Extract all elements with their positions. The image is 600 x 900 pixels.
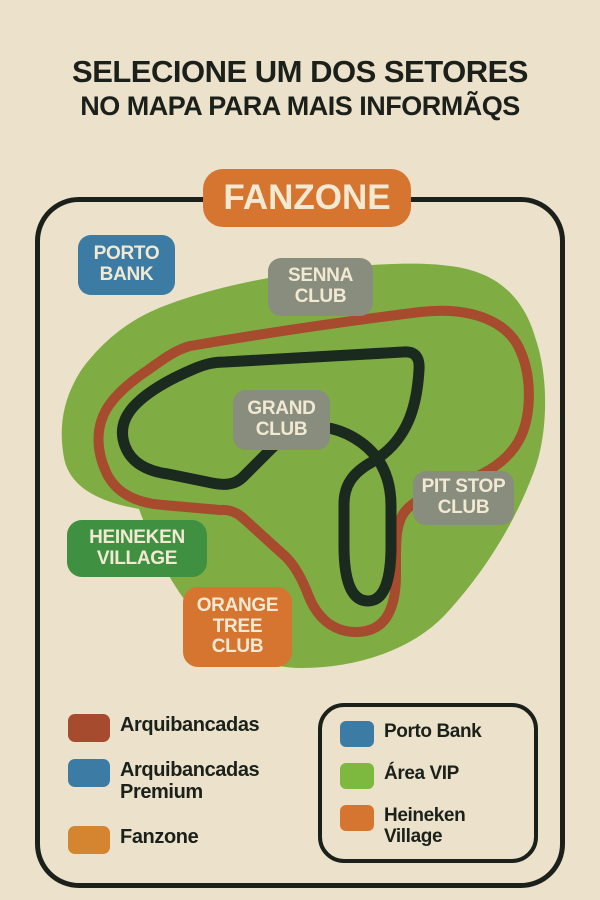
legend-item-arquibancadas: Arquibancadas [68, 714, 259, 742]
sector-porto-bank-line2: BANK [100, 265, 154, 286]
page-title: SELECIONE UM DOS SETORES NO MAPA PARA MA… [0, 54, 600, 122]
legend-label-fanzone: Fanzone [110, 826, 198, 848]
legend-label-arquibancadas-premium: Arquibancadas Premium [110, 759, 290, 804]
sector-grand-club-line2: CLUB [256, 420, 308, 441]
legend-item-area-vip: Área VIP [340, 763, 459, 789]
sector-fanzone[interactable]: FANZONE [203, 169, 411, 227]
legend-label-porto-bank: Porto Bank [374, 721, 481, 742]
sector-grand-club-line1: GRAND [247, 399, 315, 420]
sector-pit-stop-club[interactable]: PIT STOP CLUB [413, 471, 514, 525]
sector-orange-tree-club-line2: TREE [213, 617, 262, 638]
legend-item-fanzone: Fanzone [68, 826, 198, 854]
sector-grand-club[interactable]: GRAND CLUB [233, 390, 330, 450]
sector-orange-tree-club[interactable]: ORANGE TREE CLUB [183, 587, 292, 667]
legend-label-heineken-village: Heineken Village [374, 805, 494, 848]
legend-item-arquibancadas-premium: Arquibancadas Premium [68, 759, 290, 804]
legend-swatch-heineken-village [340, 805, 374, 831]
legend-swatch-area-vip [340, 763, 374, 789]
legend-label-area-vip: Área VIP [374, 763, 459, 784]
legend-swatch-fanzone [68, 826, 110, 854]
sector-pit-stop-club-line2: CLUB [438, 498, 490, 519]
sector-senna-club-line1: SENNA [288, 266, 353, 287]
legend-label-arquibancadas: Arquibancadas [110, 714, 259, 736]
sector-heineken-village[interactable]: HEINEKEN VILLAGE [67, 520, 207, 577]
legend-swatch-arquibancadas-premium [68, 759, 110, 787]
sector-senna-club[interactable]: SENNA CLUB [268, 258, 373, 316]
sector-heineken-village-line2: VILLAGE [97, 549, 177, 570]
sector-senna-club-line2: CLUB [295, 287, 347, 308]
sector-fanzone-label: FANZONE [223, 179, 390, 217]
legend-item-heineken-village: Heineken Village [340, 805, 494, 848]
legend-item-porto-bank: Porto Bank [340, 721, 481, 747]
sector-porto-bank[interactable]: PORTO BANK [78, 235, 175, 295]
title-line-2: NO MAPA PARA MAIS INFORMÃQS [0, 91, 600, 123]
legend-swatch-arquibancadas [68, 714, 110, 742]
title-line-1: SELECIONE UM DOS SETORES [0, 54, 600, 91]
sector-orange-tree-club-line1: ORANGE [197, 596, 279, 617]
sector-orange-tree-club-line3: CLUB [212, 637, 264, 658]
page-background: SELECIONE UM DOS SETORES NO MAPA PARA MA… [0, 0, 600, 900]
sector-pit-stop-club-line1: PIT STOP [422, 477, 506, 498]
sector-porto-bank-line1: PORTO [94, 244, 160, 265]
sector-heineken-village-line1: HEINEKEN [89, 528, 185, 549]
legend-swatch-porto-bank [340, 721, 374, 747]
